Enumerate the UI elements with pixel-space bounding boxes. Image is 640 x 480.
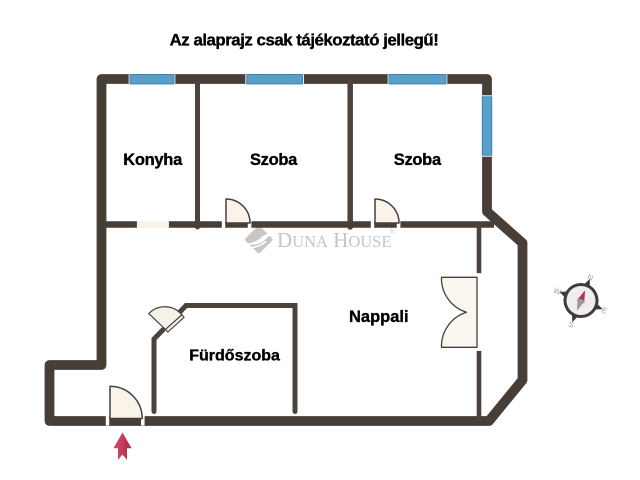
svg-text:Az alaprajz csak tájékoztató j: Az alaprajz csak tájékoztató jellegű!: [170, 30, 439, 49]
svg-text:®: ®: [390, 227, 396, 236]
svg-text:DUNA HOUSE: DUNA HOUSE: [277, 228, 391, 252]
svg-text:Szoba: Szoba: [394, 151, 442, 169]
svg-text:Nappali: Nappali: [349, 308, 409, 326]
svg-text:Fürdőszoba: Fürdőszoba: [189, 348, 280, 365]
svg-text:Szoba: Szoba: [250, 151, 298, 169]
svg-text:Konyha: Konyha: [123, 151, 183, 169]
